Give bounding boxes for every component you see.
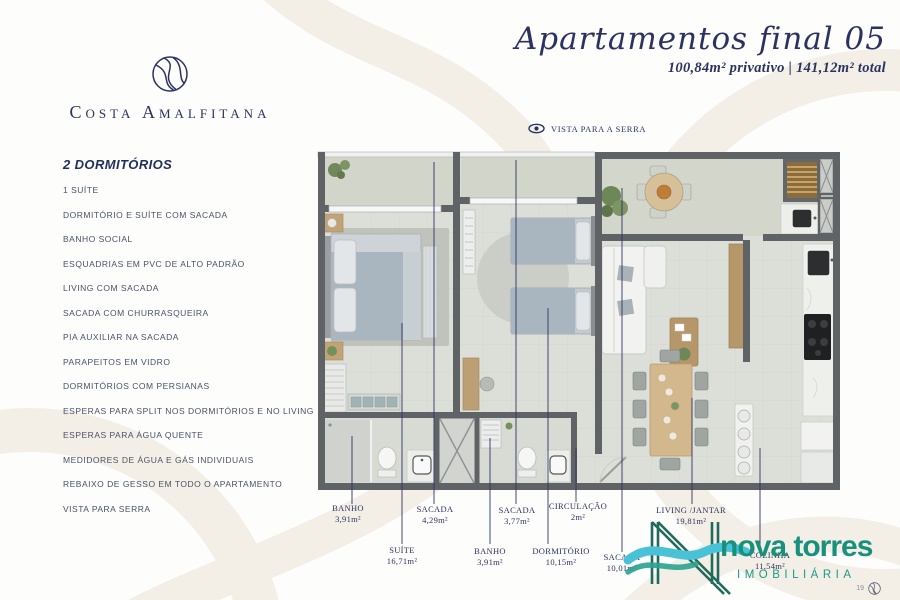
toilet xyxy=(378,447,396,469)
room-label-banho-suite: BANHO3,91m² xyxy=(332,503,364,525)
feature-item: ESPERAS PARA SPLIT NOS DORMITÓRIOS E NO … xyxy=(63,399,333,424)
feature-item: DORMITÓRIO E SUÍTE COM SACADA xyxy=(63,203,333,228)
feature-item: MEDIDORES DE ÁGUA E GÁS INDIVIDUAIS xyxy=(63,448,333,473)
dorm-balcony-floor xyxy=(461,156,595,200)
brand-name: Costa Amalfitana xyxy=(60,102,280,123)
feature-item: BANHO SOCIAL xyxy=(63,227,333,252)
toilet xyxy=(518,447,536,469)
room-label-sacada-dorm: SACADA3,77m² xyxy=(499,505,536,527)
desk xyxy=(463,358,479,410)
feature-item: ESPERAS PARA ÁGUA QUENTE xyxy=(63,423,333,448)
agency-subtitle: IMOBILIÁRIA xyxy=(737,569,856,581)
feature-item: ESQUADRIAS EM PVC DE ALTO PADRÃO xyxy=(63,252,333,277)
room-label-sacada-suite: SACADA4,29m² xyxy=(417,504,454,526)
brand-logo: Costa Amalfitana xyxy=(60,52,280,123)
brochure-page: Costa Amalfitana Apartamentos final 05 1… xyxy=(0,0,900,600)
kitchen-sink xyxy=(807,250,830,276)
page-header: Apartamentos final 05 100,84m² privativo… xyxy=(466,22,886,77)
feature-item: PARAPEITOS EM VIDRO xyxy=(63,350,333,375)
tv-panel xyxy=(729,244,745,348)
single-bed-1 xyxy=(511,216,597,266)
duct-shaft xyxy=(437,416,477,486)
grill xyxy=(783,158,821,202)
agency-name: nova torres xyxy=(720,530,872,564)
apartment-title: Apartamentos final 05 xyxy=(466,22,886,56)
feature-item: REBAIXO DE GESSO EM TODO O APARTAMENTO xyxy=(63,472,333,497)
agency-logo: nova torres IMOBILIÁRIA xyxy=(620,512,900,596)
feature-list: 2 DORMITÓRIOS 1 SUÍTE DORMITÓRIO E SUÍTE… xyxy=(63,157,333,521)
feature-items: 1 SUÍTE DORMITÓRIO E SUÍTE COM SACADA BA… xyxy=(63,178,333,521)
room-label-banho-social: BANHO3,91m² xyxy=(474,546,506,568)
feature-heading: 2 DORMITÓRIOS xyxy=(63,157,333,172)
feature-item: DORMITÓRIOS COM PERSIANAS xyxy=(63,374,333,399)
single-bed-2 xyxy=(511,286,597,336)
brand-emblem-icon xyxy=(148,52,192,96)
feature-item: LIVING COM SACADA xyxy=(63,276,333,301)
apartment-areas: 100,84m² privativo | 141,12m² total xyxy=(466,60,886,77)
feature-item: 1 SUÍTE xyxy=(63,178,333,203)
feature-item: SACADA COM CHURRASQUEIRA xyxy=(63,301,333,326)
room-label-suite: SUÍTE16,71m² xyxy=(387,545,417,567)
dorm-window xyxy=(470,198,577,204)
view-note-label: VISTA PARA A SERRA xyxy=(551,124,646,134)
desk-chair xyxy=(480,377,494,391)
suite-window xyxy=(329,206,441,212)
island-counter xyxy=(735,404,753,476)
view-note: VISTA PARA A SERRA xyxy=(528,123,646,134)
kitchen xyxy=(801,244,834,483)
fridge xyxy=(801,422,834,483)
eye-icon xyxy=(528,123,545,134)
feature-item: VISTA PARA SERRA xyxy=(63,497,333,522)
room-label-dormitorio: DORMITÓRIO10,15m² xyxy=(532,546,589,568)
cooktop xyxy=(804,314,831,360)
room-label-circulacao: CIRCULAÇÃO2m² xyxy=(549,501,607,523)
feature-item: PIA AUXILIAR NA SACADA xyxy=(63,325,333,350)
